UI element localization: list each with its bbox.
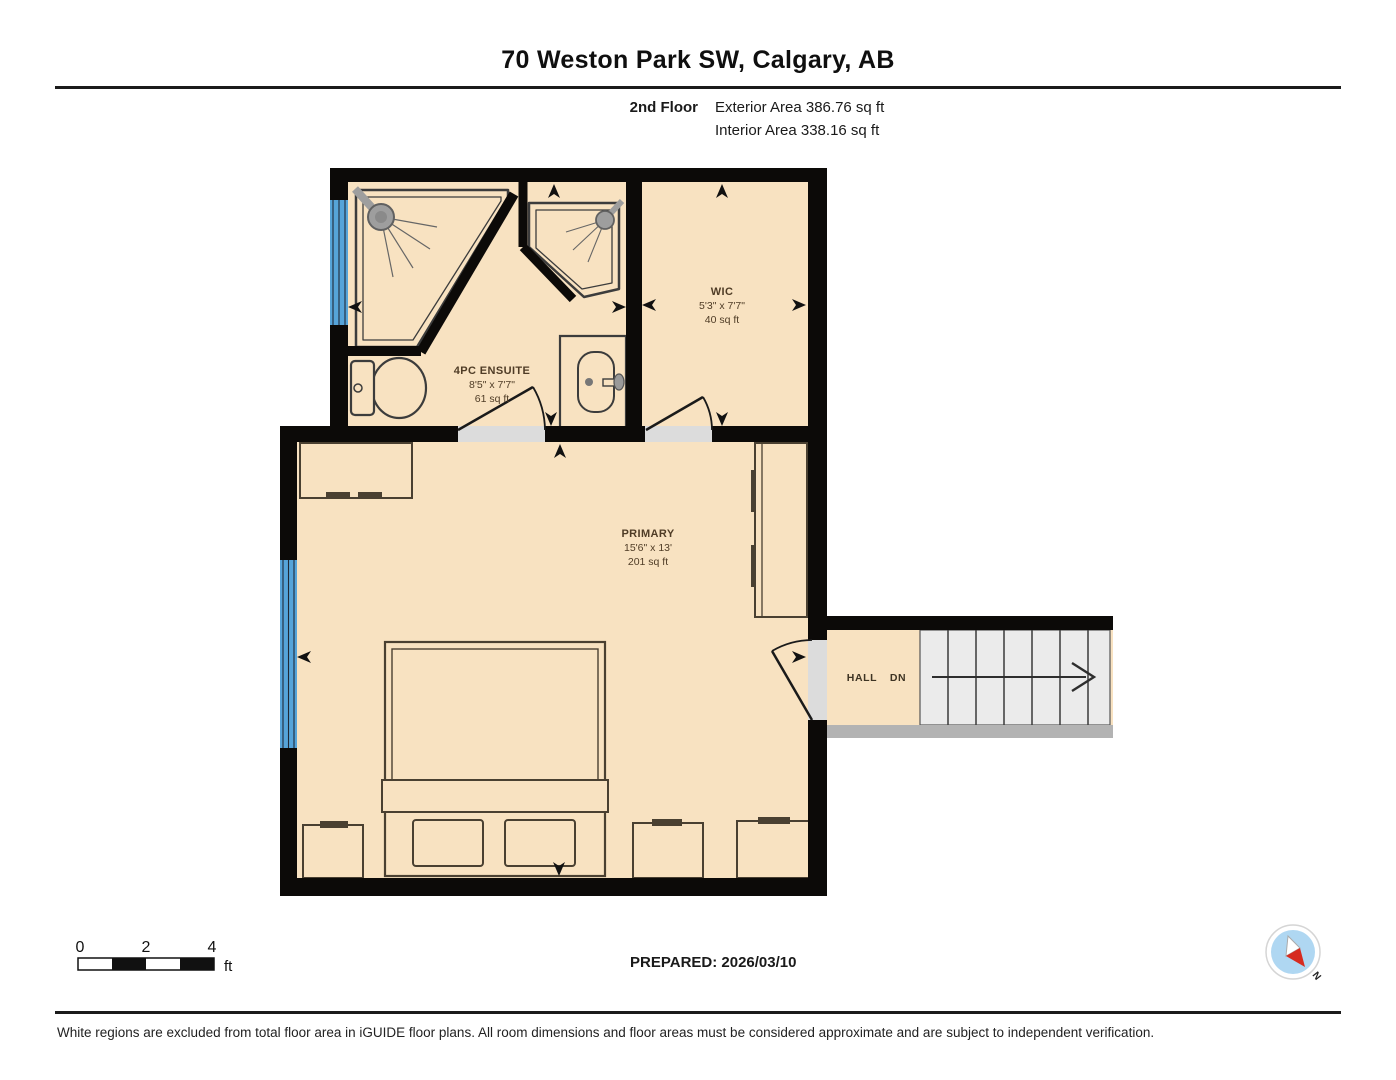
prepared-date: PREPARED: 2026/03/10 (630, 954, 796, 971)
stairs-direction-label: DN (890, 672, 906, 684)
sink-icon (560, 336, 626, 432)
disclaimer-text: White regions are excluded from total fl… (57, 1025, 1357, 1040)
toilet-icon (351, 358, 426, 418)
scale-unit: ft (224, 958, 233, 975)
room-label-wic: WIC (711, 286, 734, 298)
room-area-ensuite: 61 sq ft (475, 393, 510, 405)
wardrobe-icon (751, 443, 807, 617)
stairs-shadow (827, 725, 1113, 738)
nightstand-icon (737, 817, 813, 878)
room-dimensions-wic: 5'3" x 7'7" (699, 300, 745, 312)
nightstand-icon (303, 821, 363, 878)
scale-tick-4: 4 (208, 939, 217, 956)
room-label-hall: HALL (847, 672, 877, 684)
scale-tick-2: 2 (142, 939, 151, 956)
room-dimensions-ensuite: 8'5" x 7'7" (469, 379, 515, 391)
window-icon (330, 200, 348, 325)
compass-icon: N (1266, 925, 1323, 983)
room-area-primary: 201 sq ft (628, 556, 668, 568)
bed-icon (382, 642, 608, 876)
footer-divider (55, 1011, 1341, 1014)
scale-tick-0: 0 (76, 939, 85, 956)
scale-bar: 0 2 4 ft (76, 939, 234, 975)
room-dimensions-primary: 15'6" x 13' (624, 542, 672, 554)
nightstand-icon (633, 819, 703, 878)
room-label-primary: PRIMARY (621, 528, 674, 540)
window-icon (280, 560, 297, 748)
room-area-wic: 40 sq ft (705, 314, 740, 326)
floor-plan: 4PC ENSUITE 8'5" x 7'7" 61 sq ft WIC 5'3… (0, 0, 1396, 1080)
room-label-ensuite: 4PC ENSUITE (454, 365, 531, 377)
dresser-icon (300, 443, 412, 499)
